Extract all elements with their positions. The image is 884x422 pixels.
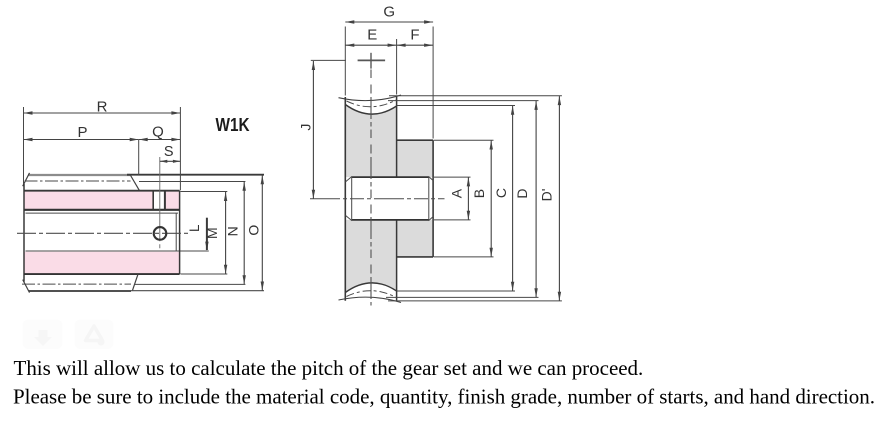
svg-text:N: N (225, 226, 241, 236)
svg-text:G: G (383, 4, 395, 21)
svg-text:E: E (367, 27, 377, 44)
svg-text:Please be sure to include the: Please be sure to include the material c… (13, 385, 875, 409)
svg-text:D: D (514, 189, 530, 199)
svg-text:O: O (245, 225, 261, 236)
svg-text:L: L (187, 224, 202, 232)
svg-text:W1K: W1K (216, 115, 250, 135)
svg-text:B: B (471, 189, 487, 198)
svg-text:P: P (77, 124, 87, 141)
svg-text:R: R (97, 99, 108, 116)
svg-text:Q: Q (152, 124, 164, 141)
svg-text:C: C (493, 188, 509, 198)
svg-text:This will allow us to calculat: This will allow us to calculate the pitc… (14, 356, 644, 380)
svg-text:F: F (410, 26, 419, 43)
svg-text:J: J (297, 124, 313, 131)
svg-text:M: M (204, 227, 220, 239)
svg-text:A: A (448, 188, 464, 198)
svg-text:S: S (164, 144, 174, 160)
svg-text:D': D' (538, 189, 554, 202)
